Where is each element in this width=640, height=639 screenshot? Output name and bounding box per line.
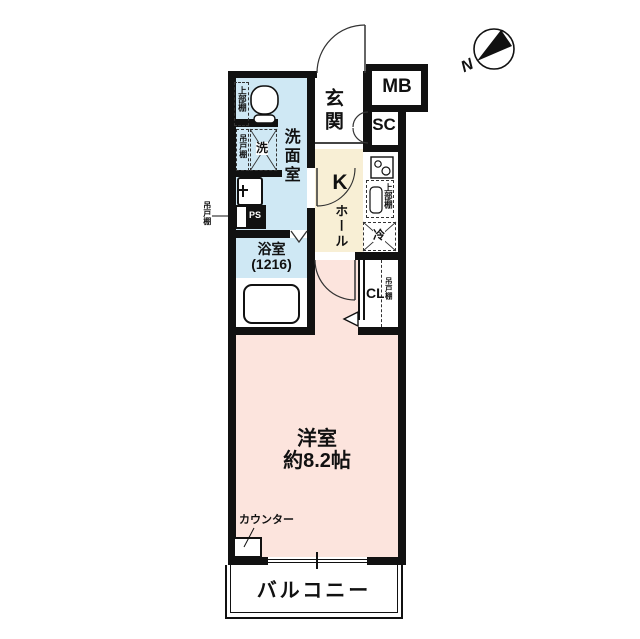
wall-entrance-right [363, 71, 372, 148]
wall-right [398, 105, 406, 565]
refrigerator-label: 冷 [373, 229, 385, 242]
entrance-door-arc [317, 25, 365, 73]
counter-box [233, 537, 262, 558]
wall-mb-top [366, 64, 428, 71]
entrance-step-line [315, 142, 363, 144]
floor-plan: N MB SC 玄関 洗面室 浴室 (1216) K ホール CL 洋室 約8.… [0, 0, 640, 639]
closet-shelf-label: 吊戸棚 [384, 277, 392, 300]
washroom-doorway [307, 168, 315, 208]
compass-icon: N [459, 29, 514, 76]
kitchen-shelf-label: 上部棚 [383, 183, 392, 209]
main-room-size: 約8.2帖 [283, 450, 351, 472]
wall-bath-bottom [228, 327, 315, 335]
washer-shelf-label: 吊戸棚 [238, 134, 247, 158]
wall-left [228, 71, 236, 565]
closet-door-track [358, 260, 365, 320]
wall-washer-bottom [236, 170, 282, 177]
wall-closet-bottom [358, 327, 406, 335]
main-room-label: 洋室 約8.2帖 [236, 428, 398, 472]
stove-icon [371, 157, 393, 178]
wall-bath-top [236, 230, 290, 238]
washroom-label: 洗面室 [281, 128, 299, 185]
wall-kitchen-top [363, 145, 406, 152]
wall-top [228, 71, 317, 78]
meter-box-label: MB [373, 77, 421, 98]
kitchen-label: K [325, 171, 355, 194]
toilet-shelf-label: 上部棚 [237, 86, 246, 112]
pipe-space-label: PS [249, 211, 261, 221]
bathtub [243, 284, 300, 324]
stove-burner-2 [382, 167, 390, 175]
wall-closet-top [355, 252, 406, 260]
bathroom-label: 浴室 (1216) [236, 242, 307, 273]
entrance-label: 玄関 [321, 88, 342, 134]
closet-label: CL [366, 286, 385, 301]
balcony-label: バルコニー [225, 580, 403, 602]
bathroom-size: (1216) [251, 256, 291, 272]
shoe-closet-label: SC [370, 116, 398, 135]
wall-washroom-right-upper [307, 78, 315, 168]
wall-washroom-right-lower [307, 208, 315, 335]
vanity-unit [237, 177, 263, 206]
wall-bottom-right [367, 557, 406, 565]
pipe-space-notch [237, 207, 246, 227]
bathroom-name: 浴室 [258, 241, 286, 257]
hall-label: ホール [333, 204, 347, 249]
room-passage-floor [315, 260, 358, 335]
washer-label: 洗 [256, 142, 268, 155]
main-room-name: 洋室 [297, 428, 337, 450]
wall-shelf-label: 吊戸棚 [202, 201, 211, 225]
compass-north-label: N [459, 56, 477, 76]
wall-bottom-left [228, 557, 268, 565]
stove-burner-1 [375, 161, 381, 167]
counter-label: カウンター [239, 514, 294, 526]
